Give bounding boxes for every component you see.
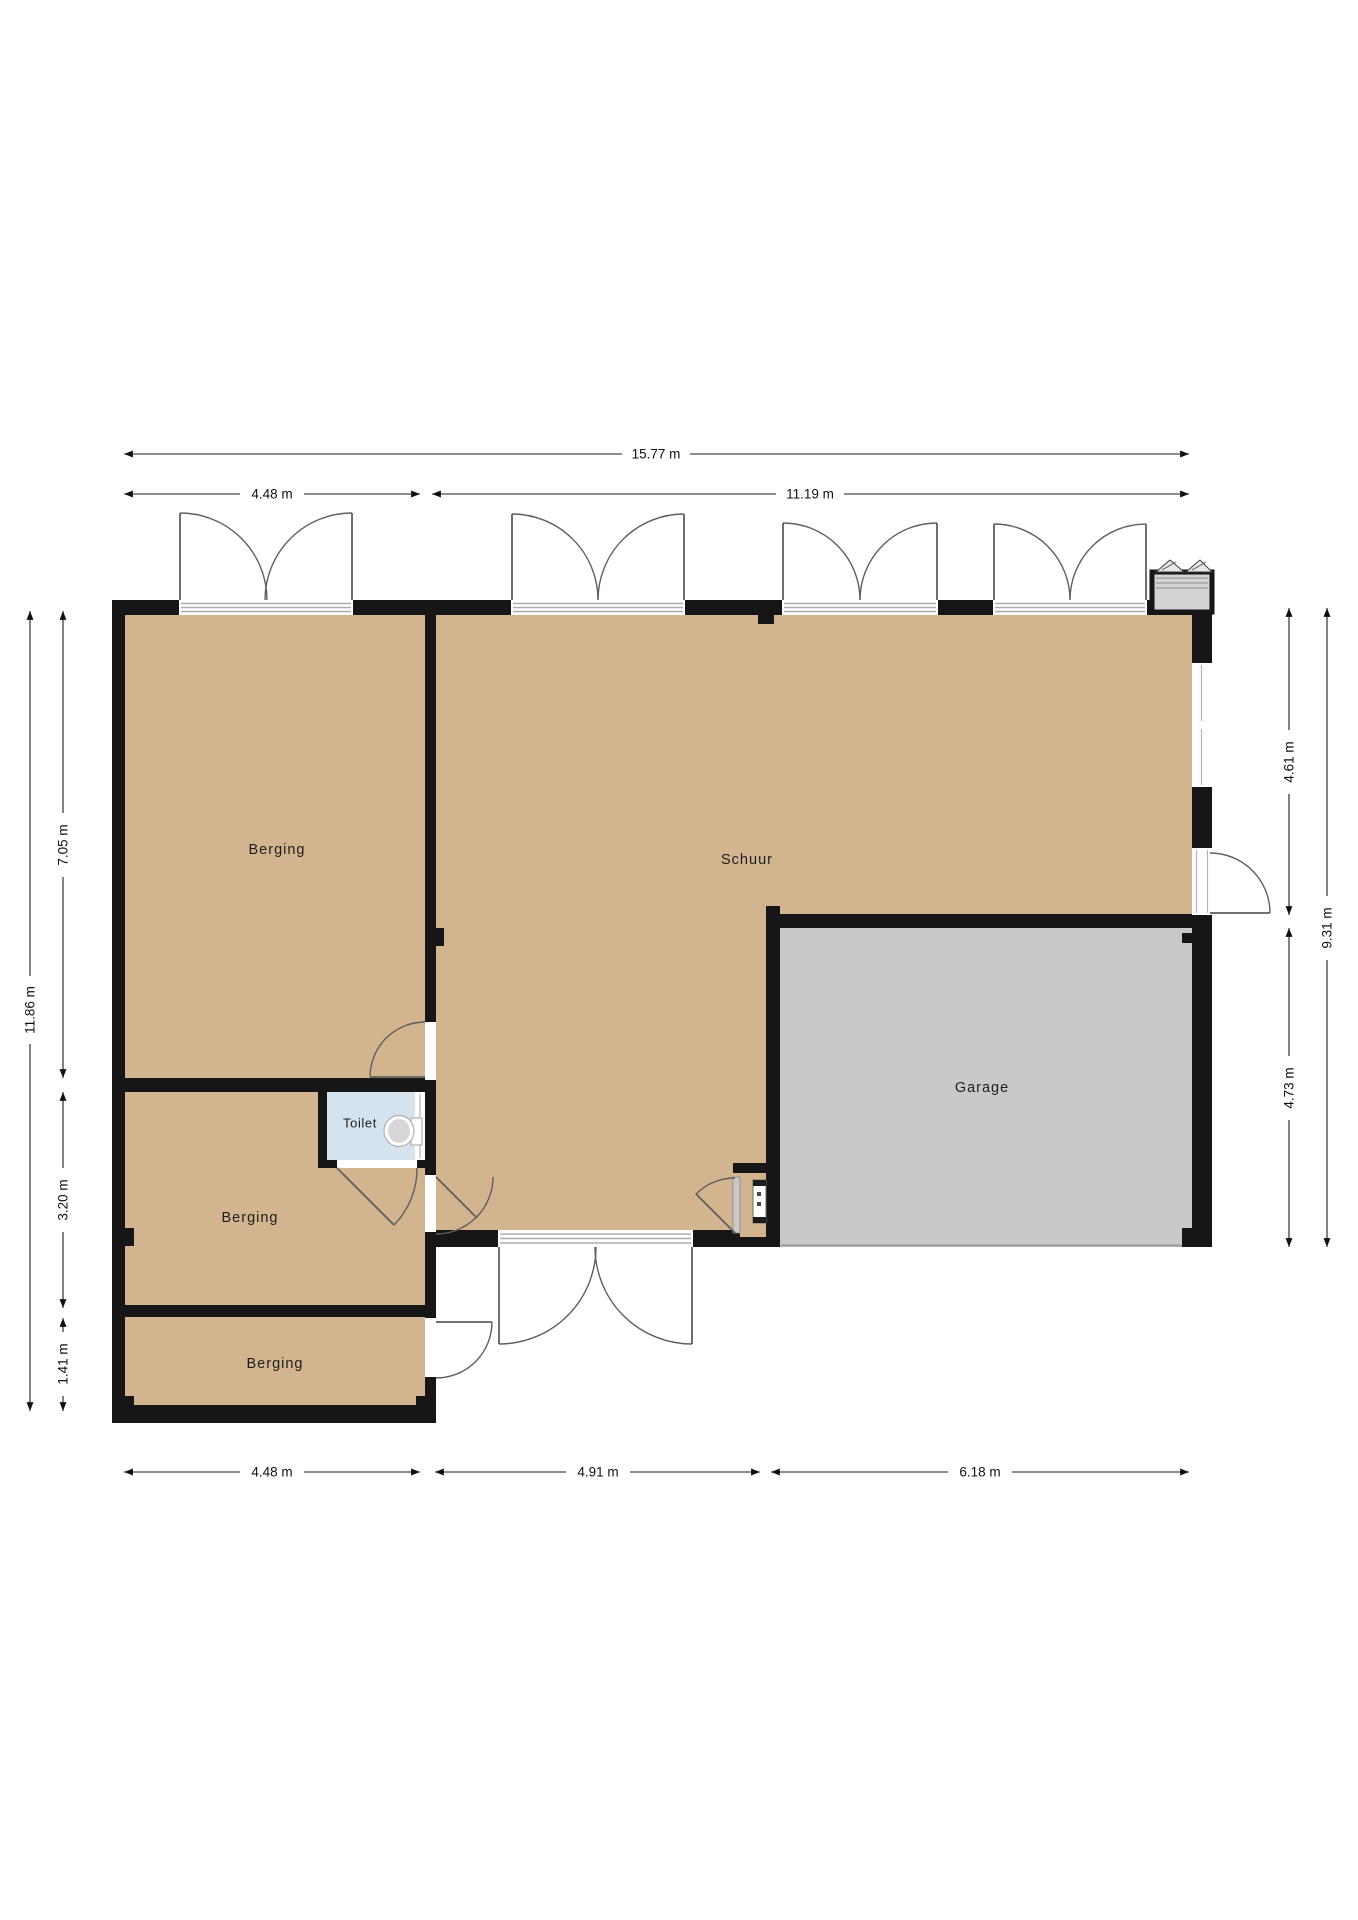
dim-label-left-upper: 7.05 m <box>56 824 71 865</box>
wall-segment <box>112 1405 436 1423</box>
floor-plan-svg: Berging Schuur Toilet Berging Berging Ga… <box>0 0 1358 1920</box>
dim-label-bottom-left: 4.48 m <box>251 1465 292 1480</box>
dim-label-right-total: 9.31 m <box>1320 907 1335 948</box>
niche-door-panel <box>733 1177 740 1233</box>
wall-pier <box>758 615 774 624</box>
room-label-schuur: Schuur <box>721 852 773 868</box>
wall-segment <box>1192 915 1212 1228</box>
room-label-berging-bottom: Berging <box>247 1356 304 1372</box>
wall-segment <box>425 614 436 1022</box>
wc-icon <box>384 1116 422 1147</box>
wall-segment <box>112 1078 436 1092</box>
wall-pier <box>436 928 444 946</box>
floor-plan-page: Berging Schuur Toilet Berging Berging Ga… <box>0 0 1358 1920</box>
dim-label-left-total: 11.86 m <box>23 986 38 1034</box>
wall-segment <box>436 1230 498 1247</box>
wall-segment <box>766 928 780 1237</box>
wall-pier <box>1182 933 1192 943</box>
wall-pier <box>416 1396 425 1405</box>
wall-pier <box>766 906 780 914</box>
dim-label-right-lower: 4.73 m <box>1282 1067 1297 1108</box>
door-gap <box>425 1318 436 1377</box>
room-label-berging-middle: Berging <box>222 1210 279 1226</box>
wall-segment <box>938 600 993 615</box>
wall-segment <box>318 1160 337 1168</box>
wall-segment <box>766 914 1192 928</box>
room-label-garage: Garage <box>955 1080 1009 1096</box>
roof-hatch <box>1152 560 1212 612</box>
wall-segment <box>318 1092 327 1168</box>
wall-segment <box>425 1377 436 1405</box>
room-label-toilet: Toilet <box>343 1115 377 1130</box>
room-label-berging-top: Berging <box>249 842 306 858</box>
dim-label-right-upper: 4.61 m <box>1282 741 1297 782</box>
door-gap <box>425 1022 436 1080</box>
wall-segment <box>417 1160 436 1168</box>
wall-segment <box>425 1232 436 1318</box>
wall-segment <box>353 600 511 615</box>
dim-label-left-middle: 3.20 m <box>56 1179 71 1220</box>
wall-segment <box>733 1163 770 1173</box>
wall-segment <box>1192 787 1212 848</box>
door-gap <box>1193 848 1211 915</box>
floors <box>125 614 1192 1405</box>
dim-label-bottom-right: 6.18 m <box>959 1465 1000 1480</box>
window-divider <box>1197 721 1206 729</box>
meter-cabinet-icon <box>753 1180 766 1223</box>
wall-segment <box>112 600 125 1423</box>
wall-segment <box>112 1305 436 1317</box>
dim-label-top-total: 15.77 m <box>632 447 681 462</box>
wall-segment <box>733 1237 780 1247</box>
wall-pier <box>125 1228 134 1246</box>
wall-pier <box>125 1396 134 1405</box>
door-gap <box>425 1175 436 1232</box>
dim-label-left-lower: 1.41 m <box>56 1343 71 1384</box>
dim-label-top-left: 4.48 m <box>251 487 292 502</box>
wall-segment <box>693 1230 733 1247</box>
dim-label-top-right: 11.19 m <box>786 487 834 502</box>
wall-pier <box>1182 1228 1212 1247</box>
wall-segment <box>685 600 782 615</box>
door-gap <box>337 1160 417 1168</box>
dim-label-bottom-middle: 4.91 m <box>577 1465 618 1480</box>
